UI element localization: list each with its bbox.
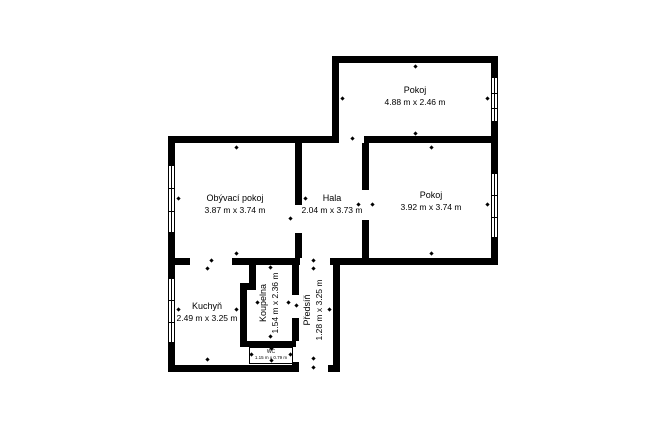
wall-segment: [330, 258, 498, 265]
window: [168, 278, 175, 343]
wall-segment: [292, 318, 299, 341]
wall-segment: [168, 258, 190, 265]
dimension-tick: [209, 258, 213, 262]
room-dimensions: 1.28 m x 3.25 m: [313, 235, 325, 385]
wall-segment: [295, 143, 302, 205]
wall-segment: [491, 143, 498, 173]
dimension-tick: [429, 145, 433, 149]
wall-segment: [168, 136, 339, 143]
room-name: Pokoj: [340, 84, 490, 96]
dimension-tick: [234, 145, 238, 149]
window-divider: [169, 300, 174, 301]
room-dimensions: 3.92 m x 3.74 m: [356, 201, 506, 213]
window: [168, 165, 175, 233]
wall-segment: [240, 283, 256, 290]
wall-segment: [362, 220, 369, 258]
dimension-tick: [327, 307, 331, 311]
wall-segment: [328, 365, 340, 372]
wall-segment: [491, 63, 498, 77]
wall-segment: [168, 365, 298, 372]
wall-segment: [168, 143, 175, 165]
room-label-pokoj-right: Pokoj 3.92 m x 3.74 m: [356, 189, 506, 213]
wall-segment: [332, 56, 498, 63]
dimension-tick: [413, 131, 417, 135]
window-divider: [169, 322, 174, 323]
dimension-tick: [294, 303, 298, 307]
dimension-tick: [234, 251, 238, 255]
window-divider: [492, 93, 497, 94]
window-divider: [492, 108, 497, 109]
dimension-tick: [205, 357, 209, 361]
window: [491, 77, 498, 122]
window-divider: [492, 217, 497, 218]
dimension-tick: [413, 64, 417, 68]
room-name: Pokoj: [356, 189, 506, 201]
wall-segment: [292, 362, 299, 372]
window-pane-line: [494, 174, 495, 237]
room-label-predsin: Předsíň 1.28 m x 3.25 m: [301, 235, 327, 385]
dimension-tick: [288, 216, 292, 220]
window-pane-line: [171, 166, 172, 232]
room-dimensions: 4.88 m x 2.46 m: [340, 96, 490, 108]
wall-segment: [362, 143, 369, 190]
floor-plan: Pokoj 4.88 m x 2.46 m Obývací pokoj 3.87…: [0, 0, 670, 447]
wall-segment: [168, 265, 175, 278]
wall-segment: [295, 233, 302, 258]
dimension-tick: [286, 300, 290, 304]
wall-segment: [333, 265, 340, 365]
window-divider: [169, 211, 174, 212]
window-divider: [169, 188, 174, 189]
window-pane-line: [494, 78, 495, 121]
wall-segment: [240, 341, 296, 347]
dimension-tick: [350, 136, 354, 140]
wall-segment: [332, 63, 339, 143]
wall-segment: [232, 258, 300, 265]
window: [491, 173, 498, 238]
dimension-tick: [429, 251, 433, 255]
window-pane-line: [171, 279, 172, 342]
window-divider: [492, 195, 497, 196]
room-name: Předsíň: [301, 235, 313, 385]
wall-segment: [292, 265, 299, 295]
wall-segment: [364, 136, 498, 143]
room-label-pokoj-top: Pokoj 4.88 m x 2.46 m: [340, 84, 490, 108]
dimension-tick: [205, 266, 209, 270]
wall-segment: [240, 290, 247, 347]
